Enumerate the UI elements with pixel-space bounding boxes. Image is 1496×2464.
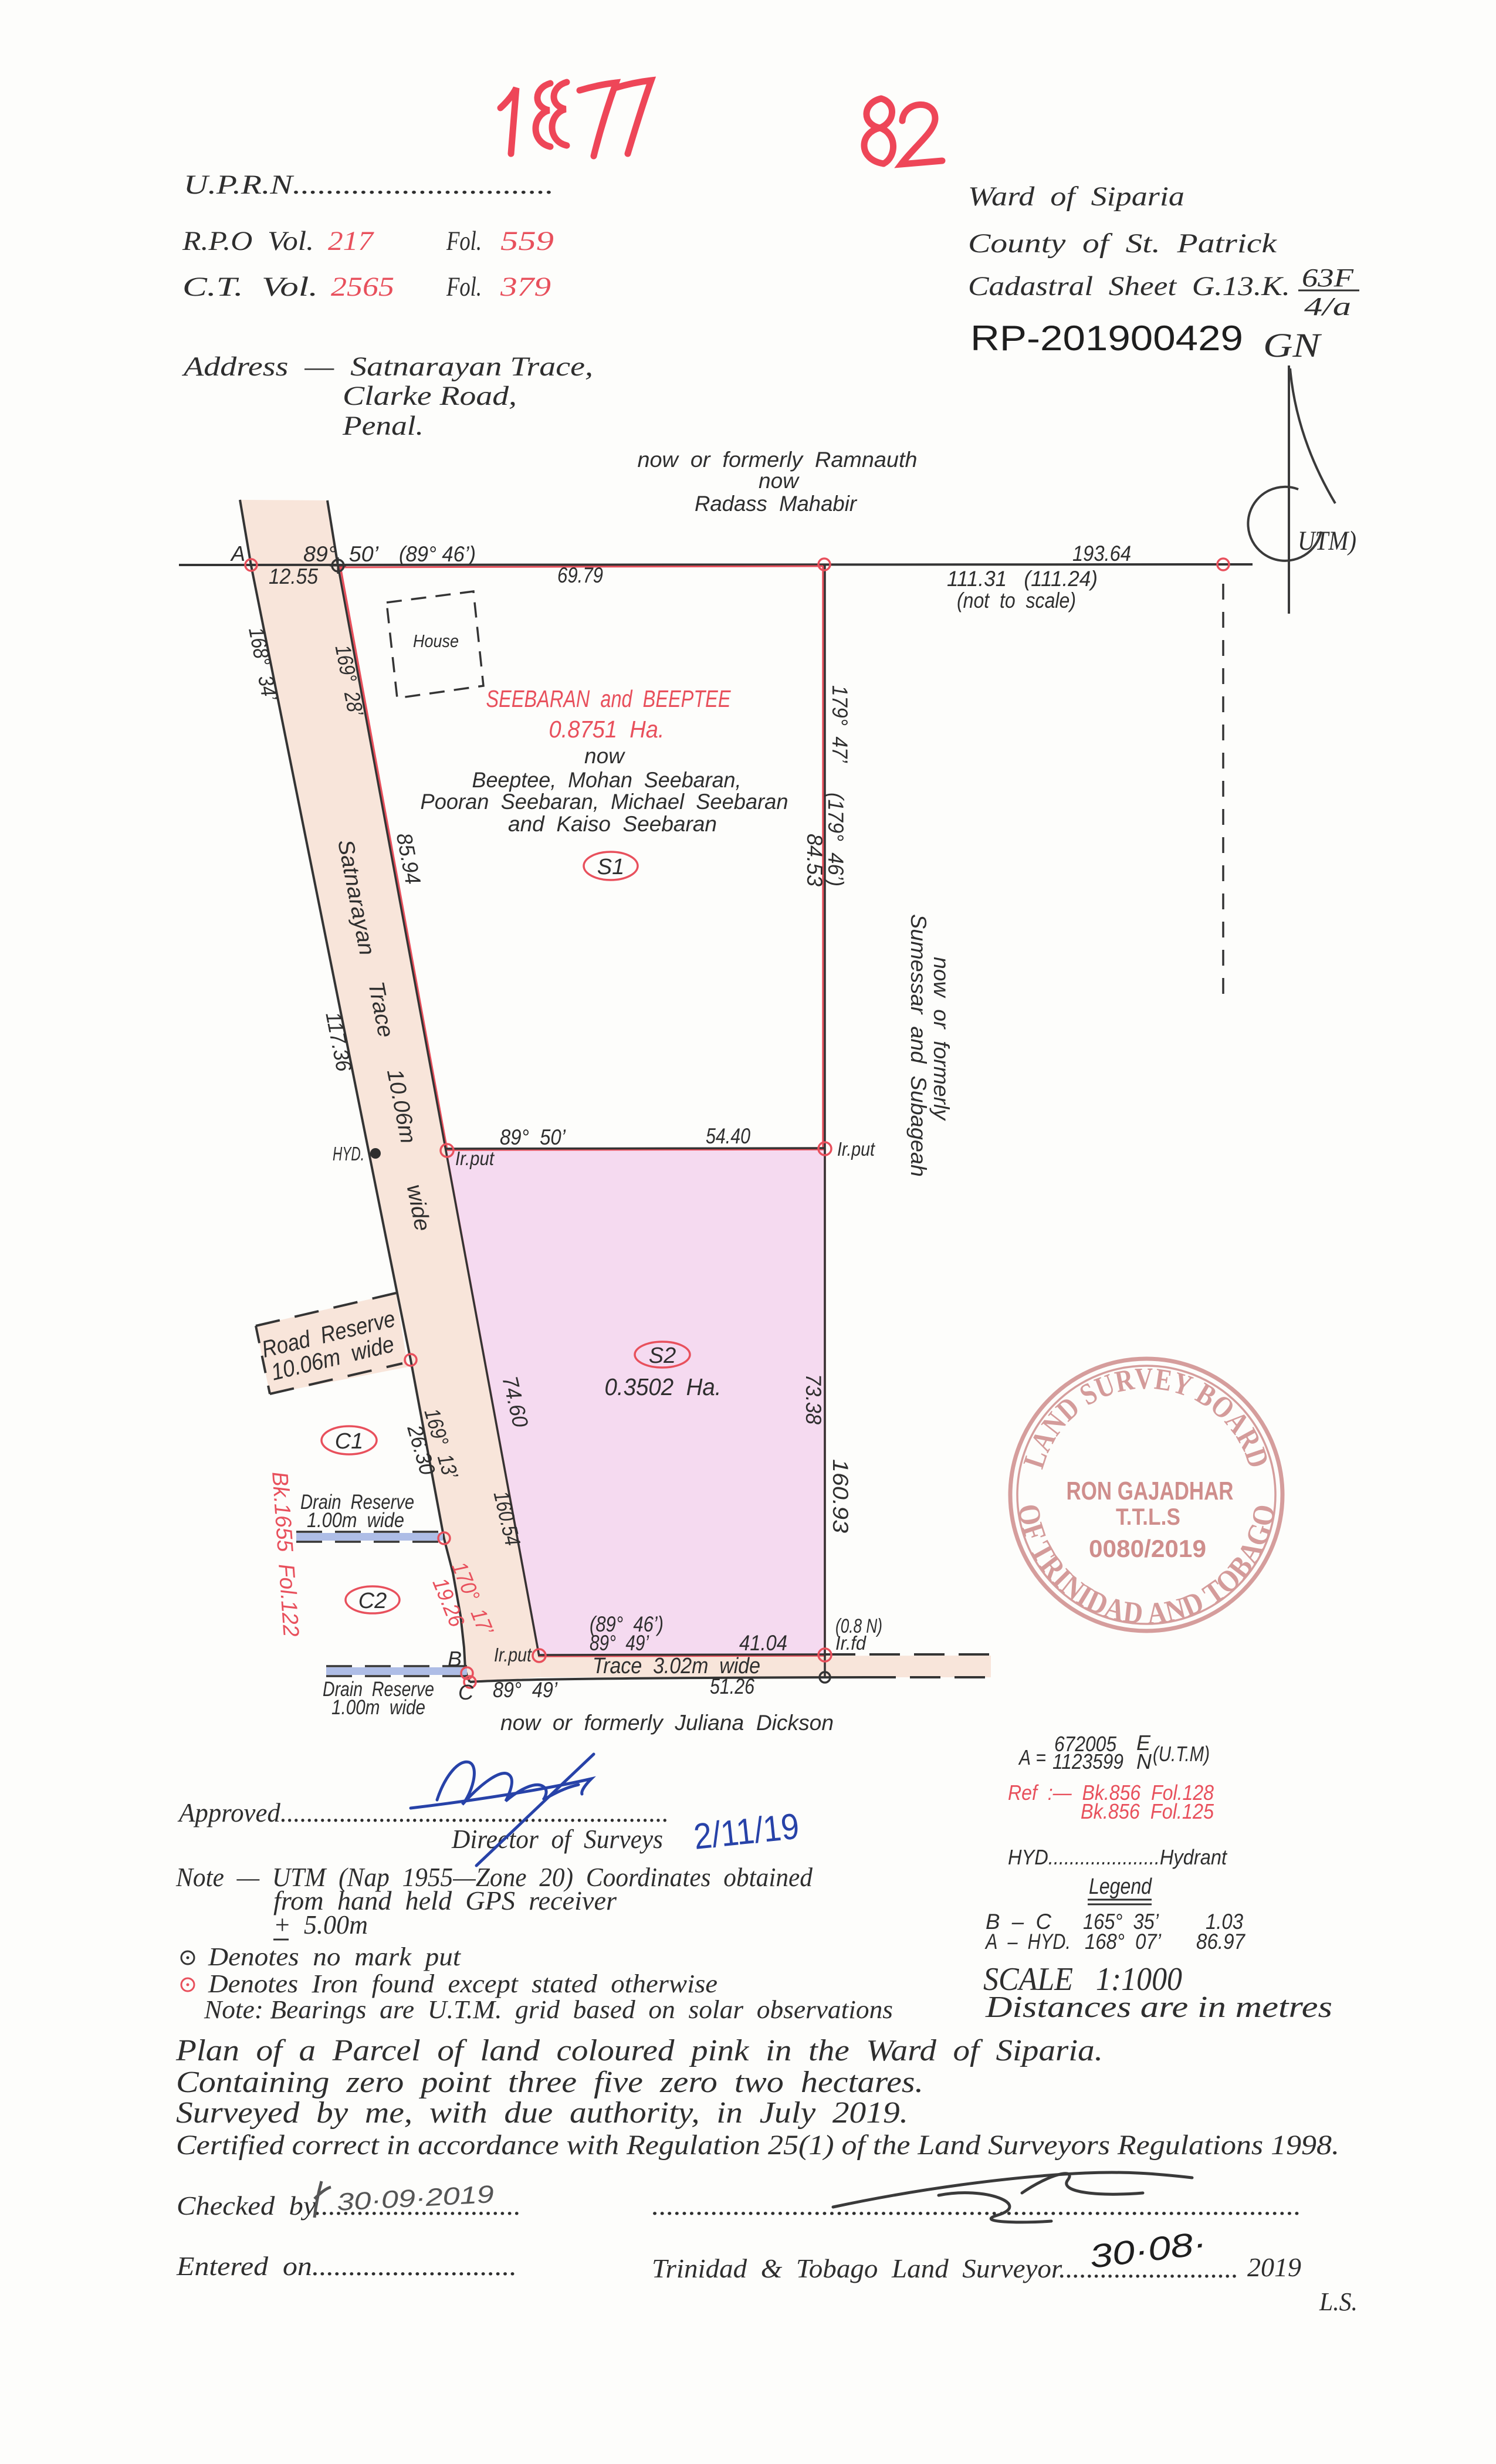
svg-text:RP-201900429: RP-201900429 [970,319,1243,358]
svg-text:Clarke Road,: Clarke Road, [343,381,517,411]
svg-text:Fol.: Fol. [446,226,482,256]
svg-text:Ward of Siparia: Ward of Siparia [968,181,1184,212]
svg-text:House: House [413,631,459,651]
svg-text:Address — Satnarayan Trace,: Address — Satnarayan Trace, [181,351,593,382]
svg-text:0080/2019: 0080/2019 [1089,1535,1206,1562]
svg-text:Ir.fd: Ir.fd [835,1632,867,1654]
svg-text:A – HYD.: A – HYD. [984,1930,1071,1954]
svg-text:89° 49’: 89° 49’ [590,1631,649,1655]
svg-text:County of St. Patrick: County of St. Patrick [968,228,1277,259]
svg-text:(179° 46’): (179° 46’) [824,793,848,886]
svg-text:168° 07’: 168° 07’ [1085,1930,1162,1954]
svg-text:Sumessar and Subageah: Sumessar and Subageah [906,914,930,1177]
svg-text:1123599: 1123599 [1052,1749,1123,1773]
svg-text:Entered on...................: Entered on............................ [176,2251,517,2281]
svg-text:N: N [1136,1749,1152,1773]
svg-text:SEEBARAN and BEEPTEE: SEEBARAN and BEEPTEE [486,685,732,712]
svg-text:now: now [759,469,800,493]
svg-text:63F: 63F [1302,263,1354,292]
svg-text:Radass Mahabir: Radass Mahabir [695,492,858,516]
svg-text:(not to scale): (not to scale) [957,588,1076,612]
svg-text:41.04: 41.04 [739,1631,787,1655]
svg-text:Ir.put: Ir.put [455,1148,495,1169]
svg-text:Penal.: Penal. [342,411,424,441]
svg-text:RON GAJADHAR: RON GAJADHAR [1067,1477,1234,1505]
svg-text:0.3502 Ha.: 0.3502 Ha. [605,1373,722,1400]
svg-text:86.97: 86.97 [1196,1930,1245,1954]
svg-text:Distances are in metres: Distances are in metres [985,1991,1332,2024]
svg-text:Note: Bearings are U.T.M. g: Note: Bearings are U.T.M. grid based on … [204,1995,893,2024]
svg-text:Bk.856 Fol.125: Bk.856 Fol.125 [1081,1799,1214,1823]
svg-text:C: C [458,1680,474,1704]
svg-text:Denotes Iron found except: Denotes Iron found except stated otherwi… [208,1969,717,1998]
svg-text:Legend: Legend [1089,1874,1153,1899]
svg-text:84.53: 84.53 [803,834,827,886]
svg-text:S1: S1 [597,855,624,879]
svg-text:GN: GN [1263,326,1322,364]
svg-text:Ir.put: Ir.put [837,1138,876,1160]
svg-text:89° 50’: 89° 50’ [500,1125,566,1149]
svg-text:4/a: 4/a [1304,292,1351,321]
svg-text:Approved......................: Approved................................… [177,1798,669,1827]
svg-text:193.64: 193.64 [1072,541,1131,566]
svg-text:B: B [448,1647,462,1671]
svg-text:now or formerly Ramnauth: now or formerly Ramnauth [638,448,918,472]
svg-text:51.26: 51.26 [710,1674,754,1698]
svg-text:0.8751 Ha.: 0.8751 Ha. [549,716,665,743]
svg-text:Beeptee, Mohan Seebaran,: Beeptee, Mohan Seebaran, [472,768,742,792]
svg-text:C.T. Vol.: C.T. Vol. [182,272,318,302]
svg-text:Denotes no mark put: Denotes no mark put [208,1942,462,1971]
svg-text:..............................: ........................................… [652,2191,1301,2221]
svg-text:Plan of a Parcel of land: Plan of a Parcel of land coloured pink i… [175,2034,1103,2067]
svg-text:HYD.....................Hydran: HYD.....................Hydrant [1008,1845,1228,1869]
svg-text:Ir.put: Ir.put [494,1644,533,1666]
svg-text:Certified correct in accordanc: Certified correct in accordance with Reg… [176,2130,1339,2161]
svg-text:+ 5.00m: + 5.00m [273,1910,368,1940]
svg-text:2565: 2565 [331,272,394,302]
svg-text:Cadastral Sheet G.13.K.: Cadastral Sheet G.13.K. [968,271,1290,302]
svg-text:179° 47’: 179° 47’ [828,685,852,763]
svg-text:now or formerly: now or formerly [929,957,953,1122]
svg-text:217: 217 [328,226,375,256]
svg-text:89° 49’: 89° 49’ [493,1678,558,1702]
svg-text:L.S.: L.S. [1319,2287,1358,2316]
svg-text:C2: C2 [358,1589,387,1613]
svg-text:HYD.: HYD. [333,1143,364,1165]
svg-text:A =: A = [1018,1745,1046,1769]
svg-text:160.93: 160.93 [828,1459,852,1533]
svg-text:A: A [230,541,245,566]
svg-text:Surveyed by me, with due: Surveyed by me, with due authority, in J… [176,2096,908,2130]
svg-text:12.55: 12.55 [269,564,318,588]
svg-text:now or formerly Juliana Di: now or formerly Juliana Dickson [500,1711,834,1735]
svg-text:(U.T.M): (U.T.M) [1153,1742,1210,1766]
svg-text:R.P.O Vol.: R.P.O Vol. [182,226,314,256]
svg-text:54.40: 54.40 [706,1124,750,1148]
svg-text:89° 50’: 89° 50’ [303,542,379,566]
svg-text:U.P.R.N.......................: U.P.R.N............................... [184,170,554,200]
svg-text:1.00m wide: 1.00m wide [307,1509,404,1532]
svg-text:Containing zero point three: Containing zero point three five zero tw… [176,2066,923,2099]
svg-text:(89° 46’): (89° 46’) [399,542,476,566]
svg-text:Fol.: Fol. [446,272,482,302]
svg-text:now: now [584,744,625,768]
svg-text:1.00m wide: 1.00m wide [331,1696,425,1719]
svg-text:111.31 (111.24): 111.31 (111.24) [947,567,1098,591]
svg-text:379: 379 [500,272,551,302]
svg-text:Pooran Seebaran, Michael Se: Pooran Seebaran, Michael Seebaran [421,790,788,814]
svg-text:C1: C1 [335,1429,364,1454]
svg-text:69.79: 69.79 [557,563,603,587]
svg-text:UTM): UTM) [1298,526,1356,556]
svg-text:T.T.L.S: T.T.L.S [1116,1504,1180,1530]
svg-text:73.38: 73.38 [801,1374,825,1424]
svg-text:559: 559 [500,226,554,256]
svg-text:and Kaiso Seebaran: and Kaiso Seebaran [508,812,717,836]
svg-text:S2: S2 [649,1343,676,1368]
svg-text:2019: 2019 [1247,2252,1301,2282]
svg-text:Director of Surveys: Director of Surveys [451,1824,663,1854]
